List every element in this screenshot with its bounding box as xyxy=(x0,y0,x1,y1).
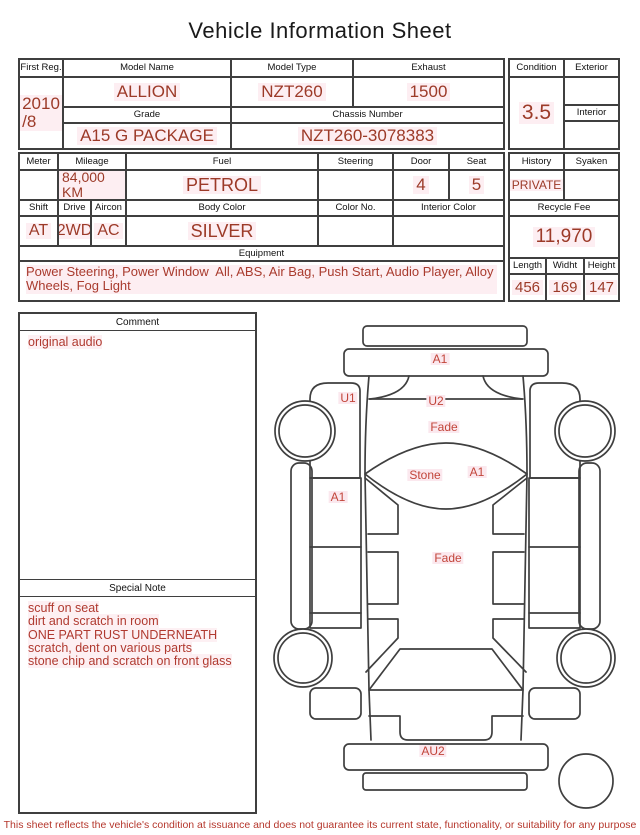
vehicle-identity-table: First Reg. Model Name Model Type Exhaust… xyxy=(18,58,505,150)
diagram-marker: U2 xyxy=(426,395,445,407)
car-damage-diagram: A1U1U2FadeStoneA1A1FadeAU2 xyxy=(272,312,636,810)
grade-label: Grade xyxy=(64,108,230,122)
diagram-marker: U1 xyxy=(338,392,357,404)
fuel-value: PETROL xyxy=(183,176,261,195)
length-label: Length xyxy=(510,259,545,273)
disclaimer-text: This sheet reflects the vehicle's condit… xyxy=(0,819,640,831)
exterior-label: Exterior xyxy=(565,60,618,76)
diagram-marker: A1 xyxy=(431,353,450,365)
fuel-label: Fuel xyxy=(127,154,317,169)
recycle-fee-value: 11,970 xyxy=(533,227,596,247)
syaken-label: Syaken xyxy=(565,154,618,169)
shift-label: Shift xyxy=(20,201,57,215)
exhaust-label: Exhaust xyxy=(354,60,503,76)
diagram-marker: A1 xyxy=(329,491,348,503)
grade-value: A15 G PACKAGE xyxy=(77,127,217,145)
diagram-marker: Fade xyxy=(428,421,459,433)
meter-label: Meter xyxy=(20,154,57,169)
seat-value: 5 xyxy=(469,176,484,194)
width-value: 169 xyxy=(549,280,580,296)
comment-header: Comment xyxy=(20,314,255,331)
length-value: 456 xyxy=(512,280,543,296)
history-fee-table: History Syaken PRIVATE Recycle Fee 11,97… xyxy=(508,152,620,302)
vehicle-information-sheet: Vehicle Information Sheet First Reg. Mod… xyxy=(0,0,640,835)
seat-label: Seat xyxy=(450,154,503,169)
height-label: Height xyxy=(585,259,618,273)
equipment-label: Equipment xyxy=(20,247,503,260)
body-color-value: SILVER xyxy=(188,222,257,241)
special-note-header: Special Note xyxy=(20,579,255,597)
mileage-label: Mileage xyxy=(59,154,125,169)
model-name-label: Model Name xyxy=(64,60,230,76)
equipment-value: Power Steering, Power Window All, ABS, A… xyxy=(26,265,497,294)
chassis-number-label: Chassis Number xyxy=(232,108,503,122)
condition-value: 3.5 xyxy=(519,102,554,124)
body-color-label: Body Color xyxy=(127,201,317,215)
aircon-value: AC xyxy=(94,223,122,240)
recycle-fee-label: Recycle Fee xyxy=(510,201,618,215)
door-label: Door xyxy=(394,154,448,169)
vehicle-spec-table: Meter Mileage Fuel Steering Door Seat 84… xyxy=(18,152,505,302)
exhaust-value: 1500 xyxy=(407,83,451,101)
interior-label: Interior xyxy=(565,106,618,120)
chassis-number-value: NZT260-3078383 xyxy=(298,127,437,145)
condition-label: Condition xyxy=(510,60,563,76)
shift-value: AT xyxy=(26,223,51,240)
interior-color-label: Interior Color xyxy=(394,201,503,215)
model-type-label: Model Type xyxy=(232,60,352,76)
first-reg-label: First Reg. xyxy=(20,60,62,76)
special-note-lines: scuff on seat dirt and scratch in room O… xyxy=(28,601,232,668)
diagram-marker: Stone xyxy=(407,469,442,481)
width-label: Widht xyxy=(547,259,583,273)
steering-label: Steering xyxy=(319,154,392,169)
history-value: PRIVATE xyxy=(510,179,563,192)
drive-value: 2WD xyxy=(59,223,90,240)
diagram-marker: AU2 xyxy=(419,745,446,757)
aircon-label: Aircon xyxy=(92,201,125,215)
diagram-marker: Fade xyxy=(432,552,463,564)
door-value: 4 xyxy=(413,176,428,194)
page-title: Vehicle Information Sheet xyxy=(0,18,640,44)
color-no-label: Color No. xyxy=(319,201,392,215)
comment-value: original audio xyxy=(28,335,102,349)
model-name-value: ALLION xyxy=(114,83,180,101)
condition-table: Condition Exterior 3.5 Interior xyxy=(508,58,620,150)
height-value: 147 xyxy=(586,280,617,296)
drive-label: Drive xyxy=(59,201,90,215)
comment-box: Comment original audio Special Note scuf… xyxy=(18,312,257,814)
first-reg-value: 2010 /8 xyxy=(20,95,62,131)
diagram-marker: A1 xyxy=(468,466,487,478)
history-label: History xyxy=(510,154,563,169)
model-type-value: NZT260 xyxy=(258,83,325,101)
mileage-value: 84,000 KM xyxy=(59,171,125,199)
